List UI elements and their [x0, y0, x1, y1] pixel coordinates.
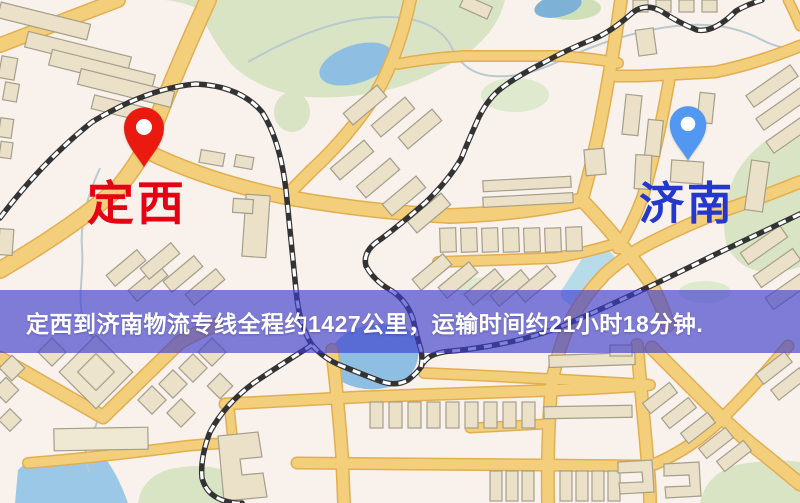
map-image: 定西 济南 定西到济南物流专线全程约1427公里，运输时间约21小时18分钟.: [0, 0, 800, 503]
destination-pin-hole: [681, 117, 696, 132]
origin-pin-body: [124, 108, 164, 168]
park-area: [274, 92, 310, 132]
map-background: [0, 0, 800, 503]
origin-pin-icon: [121, 106, 167, 168]
origin-city-label: 定西: [87, 180, 187, 227]
route-info-banner: 定西到济南物流专线全程约1427公里，运输时间约21小时18分钟.: [0, 290, 800, 353]
destination-pin-body: [670, 106, 707, 160]
route-info-text: 定西到济南物流专线全程约1427公里，运输时间约21小时18分钟.: [0, 305, 703, 339]
origin-pin-hole: [136, 119, 152, 135]
destination-city-label: 济南: [639, 181, 735, 226]
destination-pin-icon: [667, 101, 709, 165]
